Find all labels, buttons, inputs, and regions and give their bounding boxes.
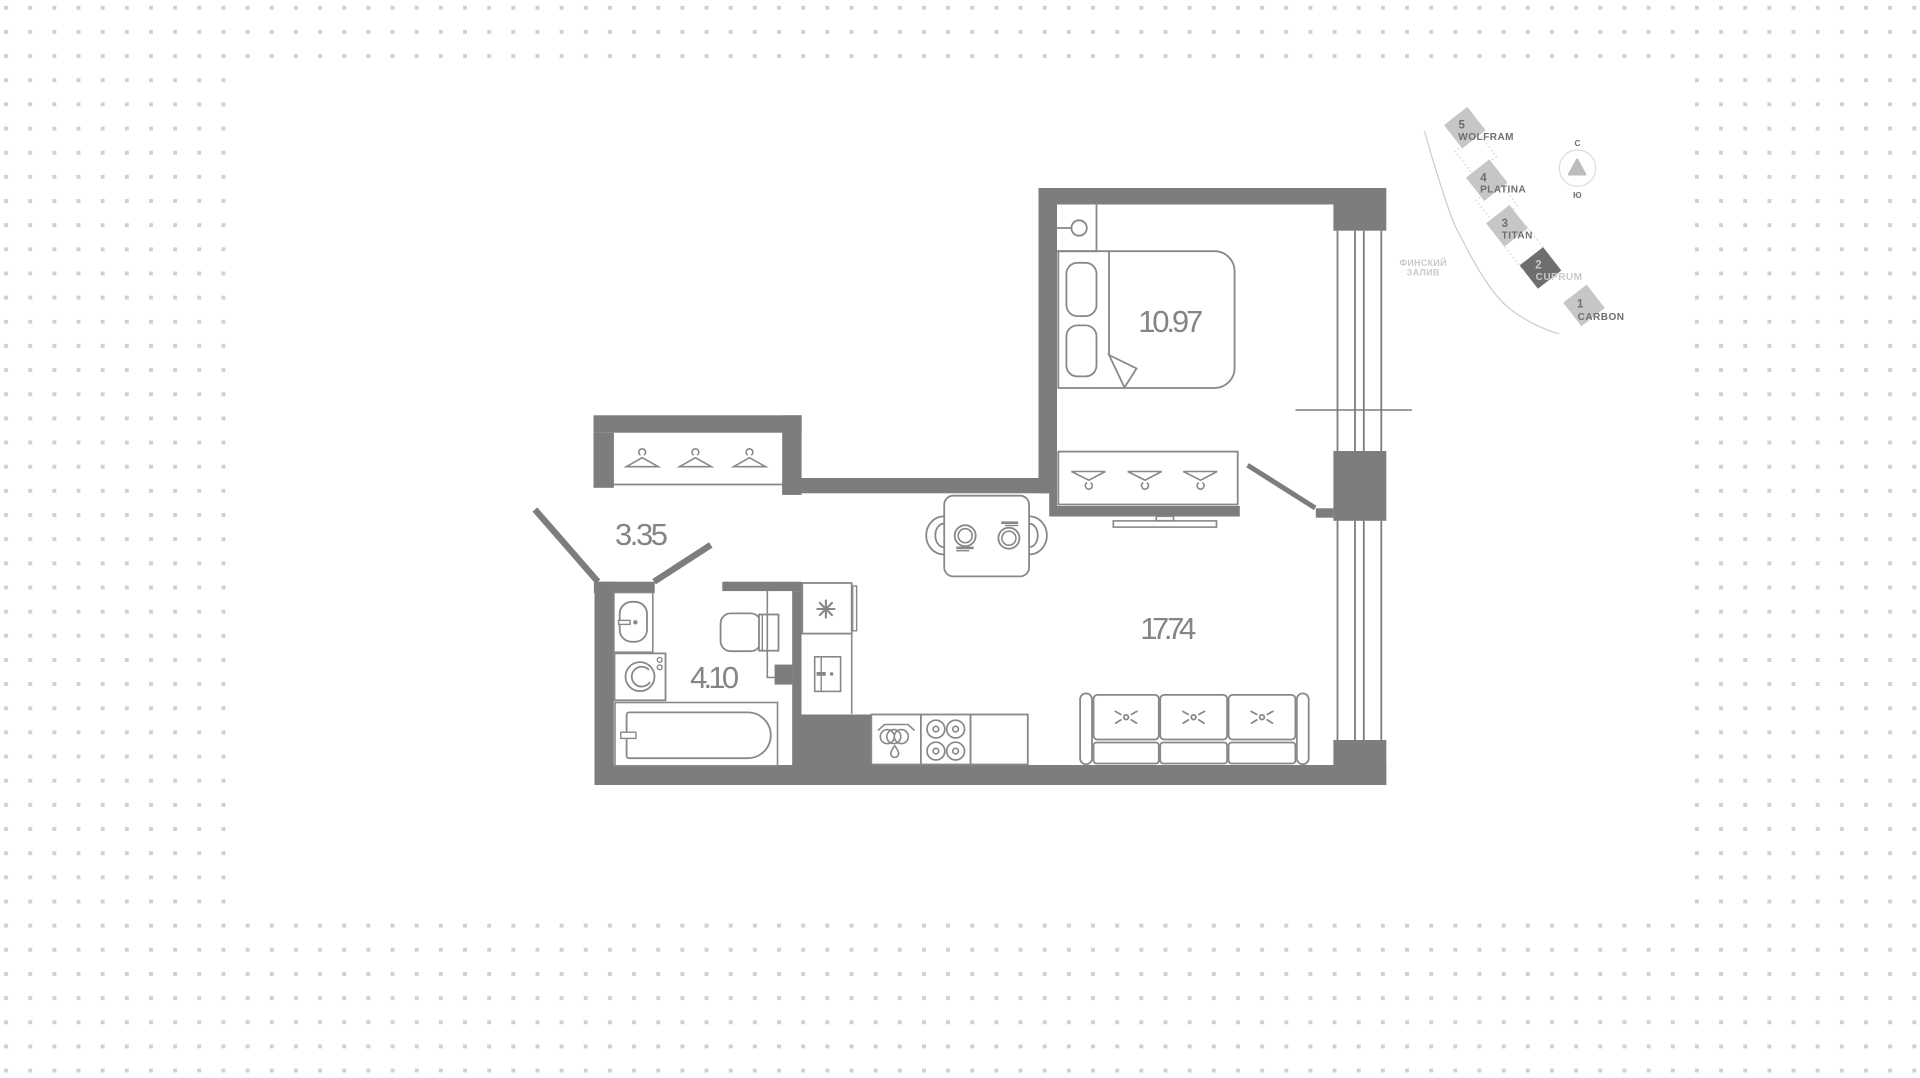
svg-text:PLATINA: PLATINA: [1480, 184, 1526, 195]
svg-text:ЗАЛИВ: ЗАЛИВ: [1407, 268, 1440, 278]
svg-text:10.97: 10.97: [1138, 304, 1203, 339]
svg-text:17.74: 17.74: [1140, 611, 1196, 646]
svg-text:WOLFRAM: WOLFRAM: [1458, 132, 1514, 143]
svg-text:TITAN: TITAN: [1502, 230, 1533, 241]
svg-text:1: 1: [1577, 299, 1584, 311]
svg-text:5: 5: [1459, 119, 1466, 131]
svg-text:ФИНСКИЙ: ФИНСКИЙ: [1400, 257, 1447, 268]
svg-text:CARBON: CARBON: [1578, 312, 1625, 323]
svg-text:3: 3: [1502, 218, 1508, 230]
svg-text:2: 2: [1535, 259, 1541, 271]
svg-text:С: С: [1574, 139, 1580, 148]
svg-text:3.35: 3.35: [615, 517, 668, 552]
svg-text:CUPRUM: CUPRUM: [1536, 272, 1583, 283]
svg-text:Ю: Ю: [1573, 191, 1582, 200]
svg-text:4: 4: [1480, 173, 1487, 185]
svg-text:4.10: 4.10: [690, 660, 739, 695]
